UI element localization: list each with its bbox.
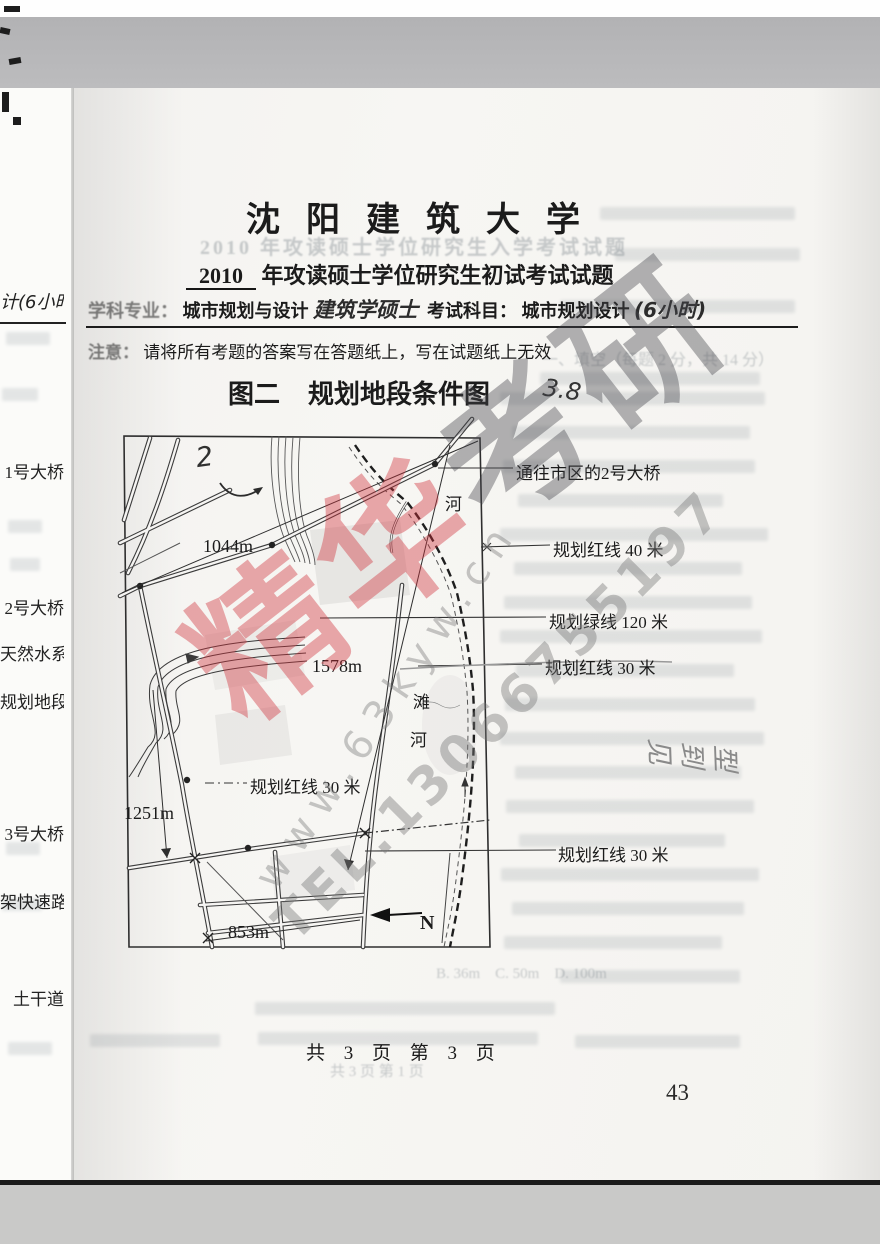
scan-top-white-band	[0, 0, 880, 17]
exam-year: 2010	[186, 263, 256, 290]
scan-corner-mark	[4, 6, 20, 12]
adjacent-text-water: 天然水系	[0, 640, 64, 665]
adjacent-text-subject: 计(6小时)	[0, 288, 64, 314]
notice-label: 注意：	[88, 343, 139, 362]
label-dim-1251: 1251m	[124, 803, 174, 824]
map-inner-edge	[442, 853, 450, 943]
adjacent-rule	[0, 322, 66, 324]
adjacent-page-strip	[0, 88, 71, 1180]
right-edge-shadow	[812, 88, 880, 1180]
scan-bottom-gray-band	[0, 1185, 880, 1244]
exam-title-text: 年攻读硕士学位研究生初试考试试题	[262, 263, 614, 288]
figure-number: 图二	[228, 380, 280, 409]
dim-arrow	[161, 848, 171, 858]
adjacent-text-plot: 规划地段	[0, 688, 64, 713]
bleedthrough-bar	[90, 1034, 220, 1047]
label-dim-853: 853m	[228, 922, 269, 943]
adjacent-text-road: 土干道	[0, 985, 64, 1010]
exam-subtitle: 2010 年攻读硕士学位研究生初试考试试题	[186, 258, 614, 290]
label-redline-30-b: 规划红线 30 米	[558, 841, 669, 866]
bleedthrough-bar	[255, 1002, 555, 1015]
bleedthrough-bar	[8, 1042, 52, 1055]
bleedthrough-bar	[2, 388, 38, 401]
bleedthrough-bar	[6, 332, 50, 345]
page-number: 43	[666, 1080, 689, 1106]
handwritten-arrowhead	[253, 487, 263, 495]
bleedthrough-bar	[10, 558, 40, 571]
university-title: 沈阳建筑大学	[246, 192, 606, 241]
major-value: 城市规划与设计	[183, 301, 309, 321]
label-north: N	[420, 912, 434, 935]
bleedthrough-bar	[8, 520, 42, 533]
major-handwritten: 建筑学硕士	[313, 298, 418, 322]
scan-corner-mark	[2, 92, 9, 112]
bleedthrough-bar	[575, 1035, 740, 1048]
north-arrow	[370, 908, 422, 922]
adjacent-text-expressway: 架快速路	[0, 888, 64, 913]
margin-note-char: 型	[707, 744, 747, 778]
bleedthrough-bar	[600, 207, 795, 220]
scan-corner-mark	[13, 117, 21, 125]
adjacent-text-bridge3: 3号大桥	[0, 820, 64, 845]
major-label: 学科专业：	[88, 301, 178, 321]
scanned-exam-page: 2010 年攻读硕士学位研究生入学考试试题 一、填空（每题 2 分，共 14 分…	[0, 0, 880, 1244]
page-footer: 共 3 页 第 3 页	[306, 1038, 502, 1065]
adjacent-text-bridge1: 1号大桥	[0, 458, 64, 483]
major-line: 学科专业： 城市规划与设计 建筑学硕士	[88, 294, 418, 324]
scan-top-gray-band	[0, 17, 880, 88]
subject-label: 考试科目：	[427, 301, 517, 321]
notice-line: 注意： 请将所有考题的答案写在答题纸上，写在试题纸上无效	[88, 338, 551, 363]
adjacent-text-bridge2: 2号大桥	[0, 594, 64, 619]
